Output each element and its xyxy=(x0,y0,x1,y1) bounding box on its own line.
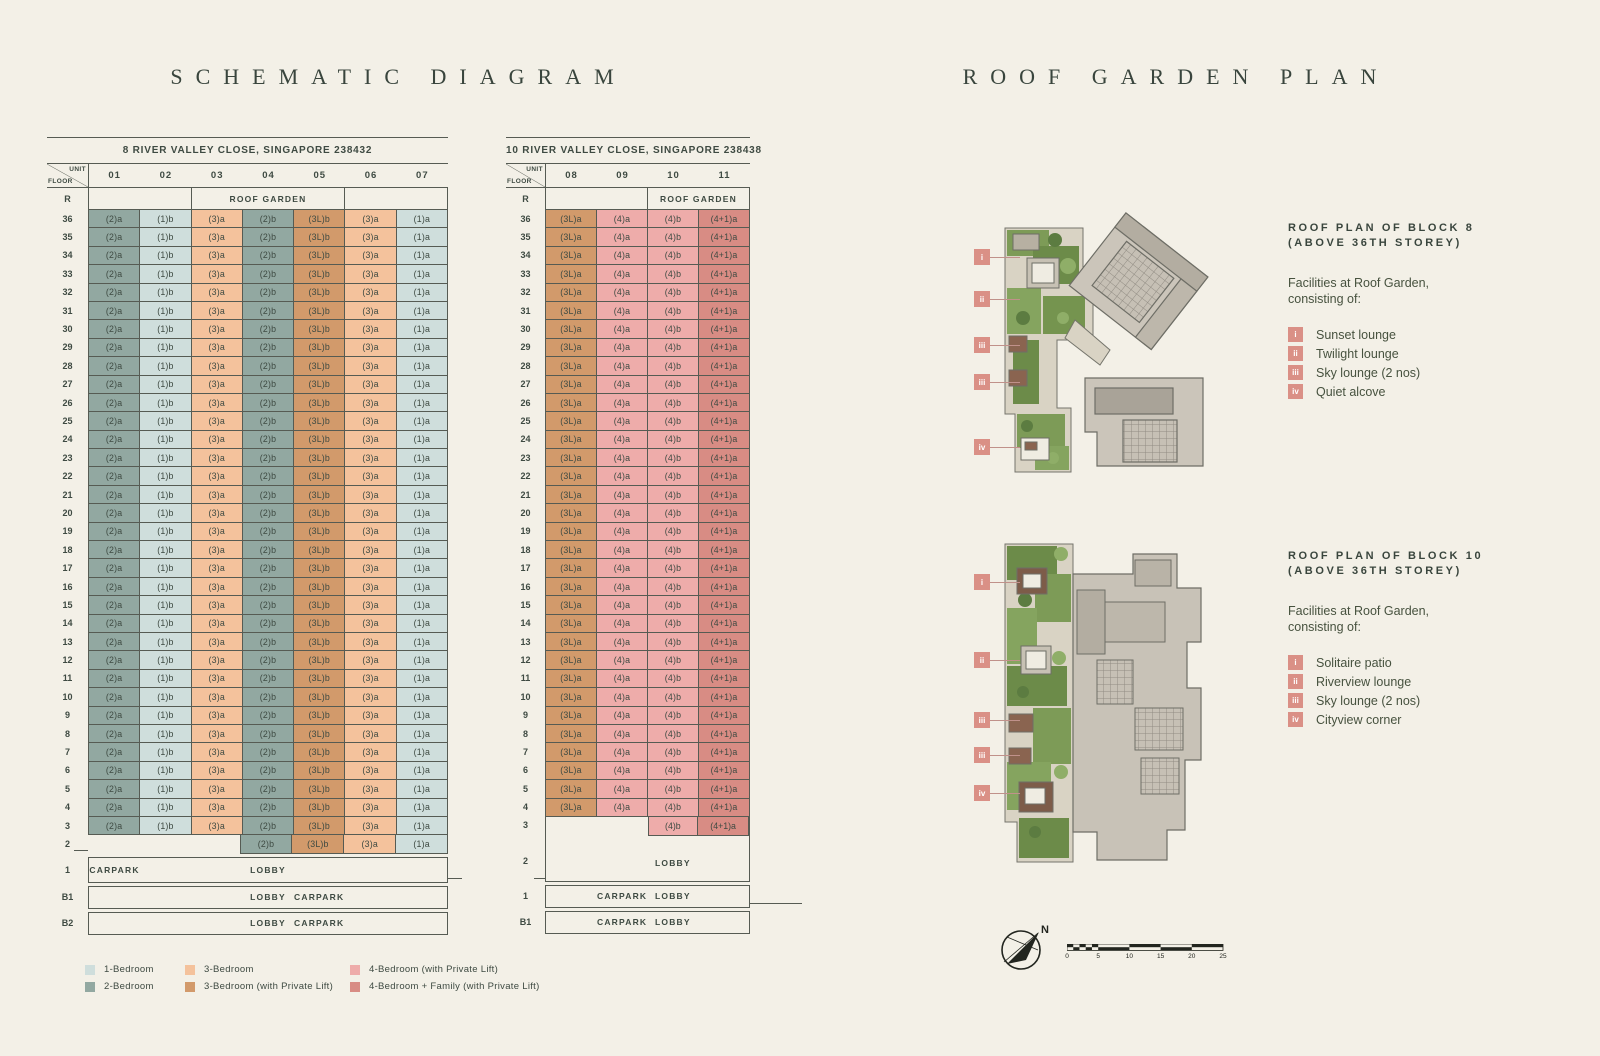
unit-cell: (3)a xyxy=(343,834,396,853)
unit-cell: (3)a xyxy=(344,393,396,412)
footer-label: LOBBY xyxy=(250,892,286,902)
plan-marker-leader-line xyxy=(990,345,1020,346)
unit-cell: (4)a xyxy=(596,485,648,504)
floor-row: 20(3L)a(4)a(4)b(4+1)a xyxy=(506,503,750,522)
unit-cell: (3)a xyxy=(344,319,396,338)
lower-region-row: 32(4)b(4+1)aLOBBY xyxy=(506,816,750,882)
floor-label: 25 xyxy=(506,411,545,430)
unit-cell: (2)a xyxy=(88,485,140,504)
unit-number: 02 xyxy=(140,164,191,187)
unit-cell: (4+1)a xyxy=(698,246,750,265)
legend-item: 4-Bedroom (with Private Lift) xyxy=(350,962,540,977)
floor-cells: (3L)a(4)a(4)b(4+1)a xyxy=(545,761,750,780)
unit-cell: (3)a xyxy=(344,503,396,522)
plan-marker-leader-line xyxy=(990,447,1020,448)
floor-label: 8 xyxy=(506,724,545,743)
footer-label: LOBBY xyxy=(250,918,286,928)
unit-cell: (3)a xyxy=(344,485,396,504)
unit-cell: (1)a xyxy=(396,485,448,504)
unit-cell: (4)a xyxy=(596,209,648,228)
footer-label: CARPARK xyxy=(89,865,139,875)
unit-cell: (3)a xyxy=(344,816,396,835)
unit-cell: (1)b xyxy=(139,540,191,559)
unit-cell: (4)a xyxy=(596,356,648,375)
floor-cells: (2)a(1)b(3)a(2)b(3L)b(3)a(1)a xyxy=(88,227,448,246)
north-label: N xyxy=(1041,924,1049,936)
unit-cell: (3L)b xyxy=(293,650,345,669)
unit-cell: (4+1)a xyxy=(698,393,750,412)
empty-area xyxy=(88,834,241,853)
unit-cell: (4+1)a xyxy=(698,595,750,614)
unit-cell: (3)a xyxy=(191,319,243,338)
unit-cell: (4+1)a xyxy=(698,209,750,228)
unit-cell: (2)a xyxy=(88,283,140,302)
unit-cell: (3)a xyxy=(344,706,396,725)
legend-item: 1-Bedroom xyxy=(85,962,154,977)
roof-row: RROOF GARDEN xyxy=(506,187,750,210)
unit-cell: (4)a xyxy=(596,614,648,633)
unit-cell: (2)a xyxy=(88,448,140,467)
unit-cell: (3L)a xyxy=(545,466,597,485)
scale-tick-label: 25 xyxy=(1219,953,1226,960)
unit-cell: (2)b xyxy=(242,209,294,228)
plan-marker-leader-line xyxy=(990,793,1020,794)
unit-cell: (1)a xyxy=(396,411,448,430)
floor-cells: (3L)a(4)a(4)b(4+1)a xyxy=(545,411,750,430)
facility-label: Riverview lounge xyxy=(1316,675,1411,689)
floor-cells: (2)a(1)b(3)a(2)b(3L)b(3)a(1)a xyxy=(88,761,448,780)
unit-cell: (4)b xyxy=(647,246,699,265)
floor-row: 9(3L)a(4)a(4)b(4+1)a xyxy=(506,706,750,725)
unit-cell: (2)a xyxy=(88,742,140,761)
unit-number: 07 xyxy=(397,164,448,187)
unit-cell: (2)a xyxy=(88,577,140,596)
floor-label: 21 xyxy=(506,485,545,504)
unit-cell: (1)b xyxy=(139,614,191,633)
floor-label: 17 xyxy=(506,558,545,577)
unit-cell: (3L)b xyxy=(293,687,345,706)
unit-cell: (3)a xyxy=(344,577,396,596)
unit-cell: (3L)b xyxy=(293,448,345,467)
plan-marker-badge: i xyxy=(974,574,990,590)
unit-cell: (3)a xyxy=(191,687,243,706)
floor-label: 15 xyxy=(506,595,545,614)
unit-cell: (2)a xyxy=(88,706,140,725)
unit-cell: (3L)a xyxy=(545,558,597,577)
unit-cell: (3L)b xyxy=(293,614,345,633)
unit-cell: (3)a xyxy=(191,448,243,467)
unit-cell: (4)b xyxy=(647,430,699,449)
unit-cell: (2)b xyxy=(242,485,294,504)
unit-cell: (4+1)a xyxy=(698,338,750,357)
unit-cell: (1)b xyxy=(139,503,191,522)
floor-cells: (3L)a(4)a(4)b(4+1)a xyxy=(545,706,750,725)
unit-cell: (3)a xyxy=(191,466,243,485)
unit-cell: (2)a xyxy=(88,393,140,412)
roof-row-segment xyxy=(88,187,192,210)
floor-cells: (2)a(1)b(3)a(2)b(3L)b(3)a(1)a xyxy=(88,430,448,449)
unit-cell: (1)b xyxy=(139,283,191,302)
unit-cell: (4)a xyxy=(596,411,648,430)
unit-cell: (2)b xyxy=(242,779,294,798)
floor-label: 36 xyxy=(47,209,88,228)
floor-cells: (3L)a(4)a(4)b(4+1)a xyxy=(545,246,750,265)
unit-cell: (4+1)a xyxy=(698,411,750,430)
block10-grid: UNITFLOOR08091011RROOF GARDEN36(3L)a(4)a… xyxy=(506,163,750,934)
plan-marker-ii: ii xyxy=(974,291,990,307)
unit-cell: (1)a xyxy=(396,669,448,688)
unit-cell: (3L)a xyxy=(545,246,597,265)
unit-cell: (4+1)a xyxy=(698,669,750,688)
unit-cell: (3)a xyxy=(191,264,243,283)
unit-number: 11 xyxy=(699,164,750,187)
floor-label: 14 xyxy=(506,614,545,633)
legend-item-label: 3-Bedroom xyxy=(204,964,254,975)
floor-row: 6(3L)a(4)a(4)b(4+1)a xyxy=(506,761,750,780)
unit-cell: (1)a xyxy=(396,448,448,467)
scale-tick-label: 10 xyxy=(1126,953,1133,960)
floor-label: 33 xyxy=(47,264,88,283)
unit-cell: (3)a xyxy=(344,209,396,228)
unit-cell: (1)b xyxy=(139,687,191,706)
floor-row: 16(2)a(1)b(3)a(2)b(3L)b(3)a(1)a xyxy=(47,577,448,596)
unit-cell: (4)b xyxy=(647,301,699,320)
unit-number: 04 xyxy=(243,164,294,187)
floor-row: 36(3L)a(4)a(4)b(4+1)a xyxy=(506,209,750,228)
unit-cell: (4)a xyxy=(596,595,648,614)
plan-marker-i: i xyxy=(974,249,990,265)
unit-cell: (3L)b xyxy=(293,503,345,522)
floor-label: 12 xyxy=(506,650,545,669)
unit-cell: (4+1)a xyxy=(698,227,750,246)
floor-cells: (2)a(1)b(3)a(2)b(3L)b(3)a(1)a xyxy=(88,503,448,522)
block8-facility-list: iSunset loungeiiTwilight loungeiiiSky lo… xyxy=(1288,325,1548,401)
unit-cell: (1)a xyxy=(396,724,448,743)
unit-cell: (3)a xyxy=(191,595,243,614)
unit-cell: (3L)b xyxy=(293,264,345,283)
unit-cell: (3L)a xyxy=(545,779,597,798)
floor-row: 3(2)a(1)b(3)a(2)b(3L)b(3)a(1)a xyxy=(47,816,448,835)
roof-row-segment xyxy=(545,187,648,210)
floor-row: 17(2)a(1)b(3)a(2)b(3L)b(3)a(1)a xyxy=(47,558,448,577)
intro-line-2: consisting of: xyxy=(1288,620,1361,634)
unit-cell: (3)a xyxy=(191,375,243,394)
unit-cell: (4)b xyxy=(647,375,699,394)
unit-cell: (3L)b xyxy=(293,577,345,596)
unit-cell: (4+1)a xyxy=(698,614,750,633)
plan-marker-leader-line xyxy=(990,755,1020,756)
floor-row: 32(3L)a(4)a(4)b(4+1)a xyxy=(506,283,750,302)
unit-cell: (1)a xyxy=(396,466,448,485)
floor-label: 8 xyxy=(47,724,88,743)
plan-marker-leader-line xyxy=(990,299,1020,300)
unit-cell: (2)b xyxy=(242,301,294,320)
unit-cell: (3)a xyxy=(191,761,243,780)
floor-label: 31 xyxy=(506,301,545,320)
unit-cell: (3)a xyxy=(344,595,396,614)
floor-row: 32(2)a(1)b(3)a(2)b(3L)b(3)a(1)a xyxy=(47,283,448,302)
floor-cells: (2)a(1)b(3)a(2)b(3L)b(3)a(1)a xyxy=(88,448,448,467)
unit-cell: (3)a xyxy=(344,466,396,485)
floor-cells: (2)a(1)b(3)a(2)b(3L)b(3)a(1)a xyxy=(88,411,448,430)
unit-cell: (2)a xyxy=(88,264,140,283)
floor-row: 35(2)a(1)b(3)a(2)b(3L)b(3)a(1)a xyxy=(47,227,448,246)
unit-cell: (2)a xyxy=(88,503,140,522)
floor-cells: (2)a(1)b(3)a(2)b(3L)b(3)a(1)a xyxy=(88,650,448,669)
unit-cell: (4+1)a xyxy=(698,558,750,577)
unit-cell: (4)a xyxy=(596,687,648,706)
unit-header-row: UNITFLOOR08091011 xyxy=(506,163,750,188)
floor-label: 10 xyxy=(506,687,545,706)
unit-cell: (3)a xyxy=(191,577,243,596)
floor-label: 36 xyxy=(506,209,545,228)
unit-cell: (1)b xyxy=(139,779,191,798)
unit-cell: (4+1)a xyxy=(698,742,750,761)
facility-marker-ii: ii xyxy=(1288,346,1303,361)
unit-cell: (4)a xyxy=(596,798,648,817)
unit-cell: (2)b xyxy=(242,411,294,430)
legend-swatch xyxy=(185,965,195,975)
unit-cell: (4)b xyxy=(647,466,699,485)
floor-cells: (2)a(1)b(3)a(2)b(3L)b(3)a(1)a xyxy=(88,540,448,559)
floor-label: 1 xyxy=(47,857,88,883)
floor-row: 34(2)a(1)b(3)a(2)b(3L)b(3)a(1)a xyxy=(47,246,448,265)
floor-cells: (2)b(3L)b(3)a(1)a xyxy=(88,834,448,853)
unit-cell: (1)a xyxy=(396,356,448,375)
unit-cell: (2)b xyxy=(242,669,294,688)
block8-ground-line xyxy=(448,878,462,879)
roof-row-segment: ROOF GARDEN xyxy=(191,187,346,210)
unit-cell: (1)b xyxy=(139,669,191,688)
floor-label: 18 xyxy=(47,540,88,559)
floor-label: 16 xyxy=(506,577,545,596)
unit-cell: (4)b xyxy=(647,393,699,412)
floor-label: B2 xyxy=(47,912,88,935)
unit-number: 09 xyxy=(597,164,648,187)
block10-schematic-table: 10 RIVER VALLEY CLOSE, SINGAPORE 238438 … xyxy=(506,137,750,934)
floor-cells: (3L)a(4)a(4)b(4+1)a xyxy=(545,356,750,375)
floor-label: 1 xyxy=(506,885,545,908)
unit-cell: (4)a xyxy=(596,319,648,338)
unit-cell: (3L)a xyxy=(545,393,597,412)
block10-step-tick xyxy=(534,878,546,879)
unit-header-row: UNITFLOOR01020304050607 xyxy=(47,163,448,188)
floor-label: 3 xyxy=(47,816,88,835)
unit-cell: (3)a xyxy=(344,669,396,688)
floor-cells: (3L)a(4)a(4)b(4+1)a xyxy=(545,319,750,338)
unit-cell: (1)b xyxy=(139,742,191,761)
unit-cell: (4+1)a xyxy=(698,724,750,743)
unit-cell: (1)b xyxy=(139,393,191,412)
unit-cell: (3)a xyxy=(191,522,243,541)
floor-cells: (2)a(1)b(3)a(2)b(3L)b(3)a(1)a xyxy=(88,779,448,798)
unit-cell: (4)a xyxy=(596,558,648,577)
floor-label: 31 xyxy=(47,301,88,320)
floor-label: 24 xyxy=(47,430,88,449)
facility-item: iiiSky lounge (2 nos) xyxy=(1288,363,1548,382)
unit-cell: (3)a xyxy=(344,761,396,780)
floor-label: 14 xyxy=(47,614,88,633)
floor-label: 22 xyxy=(506,466,545,485)
floor-row: 5(3L)a(4)a(4)b(4+1)a xyxy=(506,779,750,798)
unit-cell: (4)a xyxy=(596,466,648,485)
unit-cell: (2)a xyxy=(88,595,140,614)
floor-row: 33(3L)a(4)a(4)b(4+1)a xyxy=(506,264,750,283)
unit-cell: (3L)a xyxy=(545,687,597,706)
unit-cell: (4)a xyxy=(596,706,648,725)
unit-cell: (4)a xyxy=(596,577,648,596)
legend-item: 2-Bedroom xyxy=(85,979,154,994)
floor-label: R xyxy=(47,187,88,210)
block8-address: 8 RIVER VALLEY CLOSE, SINGAPORE 238432 xyxy=(47,138,448,163)
unit-cell: (4+1)a xyxy=(698,577,750,596)
floor-cells: (2)a(1)b(3)a(2)b(3L)b(3)a(1)a xyxy=(88,595,448,614)
floor-cells: (3L)a(4)a(4)b(4+1)a xyxy=(545,742,750,761)
legend-swatch xyxy=(350,965,360,975)
floor-cells: (3L)a(4)a(4)b(4+1)a xyxy=(545,393,750,412)
floor-label: 32 xyxy=(506,283,545,302)
unit-cell: (4)a xyxy=(596,264,648,283)
floor-label: 6 xyxy=(47,761,88,780)
plan-marker-badge: iii xyxy=(974,337,990,353)
floor-row: 11(3L)a(4)a(4)b(4+1)a xyxy=(506,669,750,688)
floor-cells: (3L)a(4)a(4)b(4+1)a xyxy=(545,485,750,504)
unit-cell: (3L)b xyxy=(293,724,345,743)
unit-cell: (3)a xyxy=(191,724,243,743)
unit-cell: (3L)b xyxy=(293,283,345,302)
plan-marker-badge: iii xyxy=(974,374,990,390)
unit-cell: (4+1)a xyxy=(698,301,750,320)
floor-cells: (2)a(1)b(3)a(2)b(3L)b(3)a(1)a xyxy=(88,706,448,725)
floor-row: 35(3L)a(4)a(4)b(4+1)a xyxy=(506,227,750,246)
floor-label: 30 xyxy=(506,319,545,338)
floor-cells: (3L)a(4)a(4)b(4+1)a xyxy=(545,614,750,633)
legend-item-label: 4-Bedroom + Family (with Private Lift) xyxy=(369,981,540,992)
unit-cell: (4)b xyxy=(647,761,699,780)
floor-row: 14(2)a(1)b(3)a(2)b(3L)b(3)a(1)a xyxy=(47,614,448,633)
unit-cell: (2)a xyxy=(88,411,140,430)
plan-marker-iv: iv xyxy=(974,439,990,455)
unit-cell: (3)a xyxy=(344,798,396,817)
floor-row: 31(3L)a(4)a(4)b(4+1)a xyxy=(506,301,750,320)
unit-cell: (4+1)a xyxy=(698,264,750,283)
corner-unit-label: UNIT xyxy=(526,166,543,173)
unit-cell: (4)b xyxy=(647,687,699,706)
unit-cell: (4+1)a xyxy=(698,706,750,725)
unit-cell: (4)a xyxy=(596,540,648,559)
unit-cell: (3)a xyxy=(191,356,243,375)
unit-cell: (3)a xyxy=(344,448,396,467)
footer-box: LOBBYCARPARK xyxy=(88,912,448,935)
floor-row: 12(2)a(1)b(3)a(2)b(3L)b(3)a(1)a xyxy=(47,650,448,669)
unit-cell: (1)a xyxy=(396,540,448,559)
unit-cell: (4)a xyxy=(596,375,648,394)
plan-marker-iv: iv xyxy=(974,785,990,801)
floor-row: 23(2)a(1)b(3)a(2)b(3L)b(3)a(1)a xyxy=(47,448,448,467)
floor-label: 34 xyxy=(47,246,88,265)
unit-cell: (3)a xyxy=(191,669,243,688)
unit-cell: (4)a xyxy=(596,669,648,688)
unit-cell: (1)a xyxy=(396,816,448,835)
unit-cell: (4)b xyxy=(647,264,699,283)
floor-cells: (3L)a(4)a(4)b(4+1)a xyxy=(545,301,750,320)
floor-row: 16(3L)a(4)a(4)b(4+1)a xyxy=(506,577,750,596)
floor-cells: (2)a(1)b(3)a(2)b(3L)b(3)a(1)a xyxy=(88,209,448,228)
unit-cell: (3)a xyxy=(191,706,243,725)
footer-box: CARPARKLOBBY xyxy=(88,857,448,883)
floor-row: 14(3L)a(4)a(4)b(4+1)a xyxy=(506,614,750,633)
unit-cell: (3)a xyxy=(344,246,396,265)
floor-label: 22 xyxy=(47,466,88,485)
unit-cell: (1)a xyxy=(396,522,448,541)
unit-cell: (4)b xyxy=(647,283,699,302)
facility-marker-iii: iii xyxy=(1288,693,1303,708)
floor-row: 15(3L)a(4)a(4)b(4+1)a xyxy=(506,595,750,614)
unit-cell: (2)b xyxy=(242,650,294,669)
block8-roof-subheading: (ABOVE 36TH STOREY) xyxy=(1288,236,1548,251)
unit-cell: (3L)a xyxy=(545,448,597,467)
floor-row: 27(2)a(1)b(3)a(2)b(3L)b(3)a(1)a xyxy=(47,375,448,394)
unit-cell: (2)b xyxy=(242,761,294,780)
unit-cell: (2)b xyxy=(242,595,294,614)
floor-label: 3 xyxy=(506,820,545,830)
floor-row: 30(2)a(1)b(3)a(2)b(3L)b(3)a(1)a xyxy=(47,319,448,338)
floor-label: 29 xyxy=(506,338,545,357)
legend-item-label: 1-Bedroom xyxy=(104,964,154,975)
floor-label: 33 xyxy=(506,264,545,283)
floor-cells: (2)a(1)b(3)a(2)b(3L)b(3)a(1)a xyxy=(88,283,448,302)
unit-cell: (3L)b xyxy=(293,301,345,320)
legend-item: 3-Bedroom (with Private Lift) xyxy=(185,979,333,994)
unit-cell: (2)b xyxy=(242,375,294,394)
legend-swatch xyxy=(85,982,95,992)
facility-marker-iii: iii xyxy=(1288,365,1303,380)
plan-marker-ii: ii xyxy=(974,652,990,668)
unit-cell: (1)a xyxy=(396,558,448,577)
floor-label: 27 xyxy=(47,375,88,394)
floor-row: 28(2)a(1)b(3)a(2)b(3L)b(3)a(1)a xyxy=(47,356,448,375)
unit-cell: (3L)b xyxy=(293,246,345,265)
floor-label: 15 xyxy=(47,595,88,614)
unit-cell: (1)a xyxy=(396,283,448,302)
unit-cell: (2)b xyxy=(242,448,294,467)
unit-cell: (3L)b xyxy=(293,209,345,228)
unit-cell: (3L)b xyxy=(293,779,345,798)
intro-line-1: Facilities at Roof Garden, xyxy=(1288,276,1429,290)
legend-item-label: 3-Bedroom (with Private Lift) xyxy=(204,981,333,992)
unit-cell: (3)a xyxy=(191,632,243,651)
floor-row: 26(3L)a(4)a(4)b(4+1)a xyxy=(506,393,750,412)
unit-cell: (3)a xyxy=(344,375,396,394)
floor-row: 36(2)a(1)b(3)a(2)b(3L)b(3)a(1)a xyxy=(47,209,448,228)
floor-cells: (2)a(1)b(3)a(2)b(3L)b(3)a(1)a xyxy=(88,522,448,541)
unit-number: 01 xyxy=(89,164,140,187)
unit-cell: (2)b xyxy=(242,816,294,835)
unit-cell: (3L)b xyxy=(293,375,345,394)
unit-cell: (4)a xyxy=(596,742,648,761)
unit-cell: (2)a xyxy=(88,816,140,835)
floor-label: 23 xyxy=(47,448,88,467)
unit-cell: (2)a xyxy=(88,669,140,688)
unit-cell: (4)a xyxy=(596,632,648,651)
floor-row: 34(3L)a(4)a(4)b(4+1)a xyxy=(506,246,750,265)
unit-cell: (3L)a xyxy=(545,577,597,596)
unit-cell: (3)a xyxy=(344,650,396,669)
unit-cell: (1)b xyxy=(139,485,191,504)
unit-cell: (3L)b xyxy=(293,485,345,504)
unit-cell: (2)a xyxy=(88,246,140,265)
unit-cell: (3)a xyxy=(191,650,243,669)
